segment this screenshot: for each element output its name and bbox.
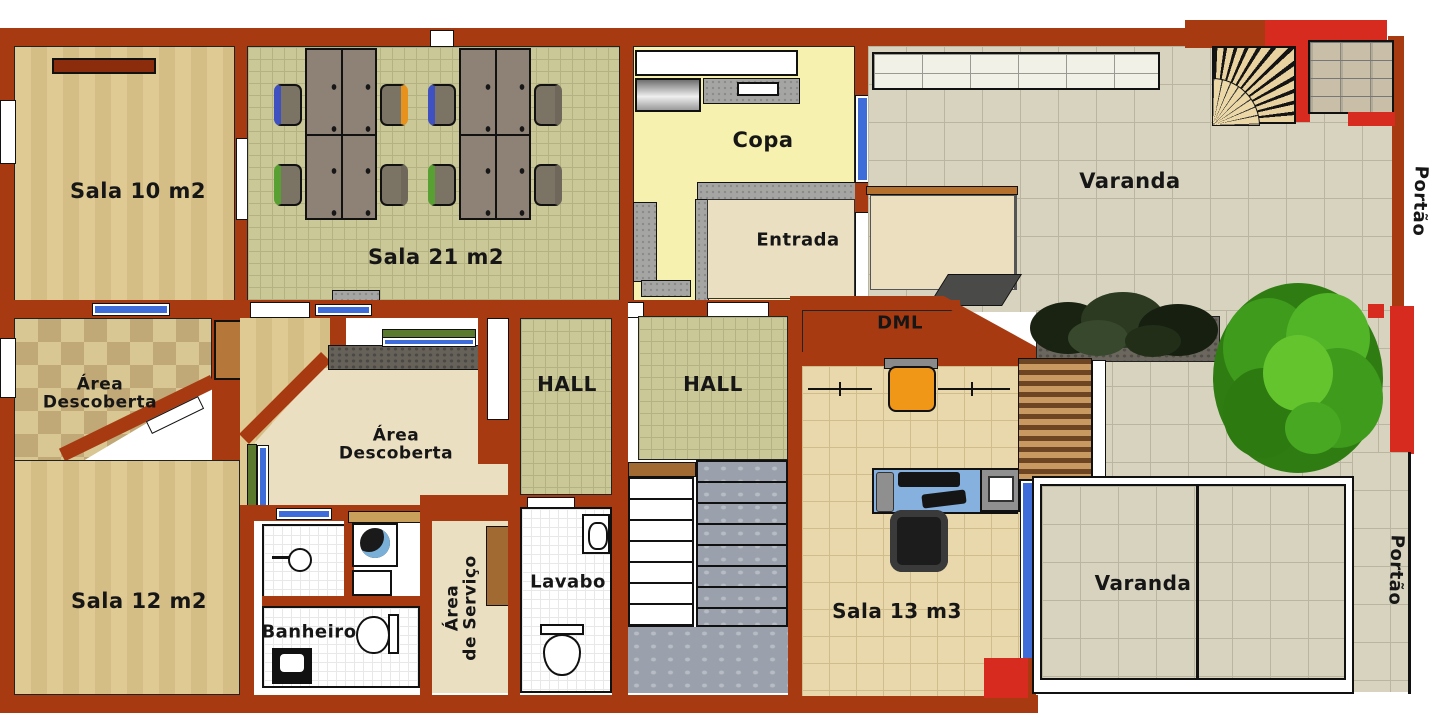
label-varanda-top: Varanda [1079,169,1180,193]
shrubs-icon [1028,286,1228,364]
stone-paving [1308,40,1394,114]
wall-topright-dark [1185,20,1267,48]
stairs-marble [696,460,788,627]
stairs-landing-top [628,462,696,477]
window-banheiro-top [276,508,332,520]
window-sala21-top [430,30,454,47]
door-sala21-bottom [250,302,310,318]
window-sala10-left [0,100,16,164]
label-sala13: Sala 13 m3 [832,599,962,623]
wall-banheiro-servico [420,505,432,695]
door-entrada-hall [707,302,769,317]
room-sala-12 [14,460,240,695]
label-varanda-bottom: Varanda [1095,571,1192,595]
office-chair-green-2 [428,164,456,206]
room-hall-left [520,318,612,495]
office-chair-gray-2 [534,84,562,126]
fridge [635,78,701,112]
dimension-tick-right [971,382,973,396]
guest-chair-orange [888,366,936,412]
window-sala10-bottom [92,303,170,316]
skylight-panels [872,52,1160,90]
label-sala12: Sala 12 m2 [71,589,207,613]
washing-machine-door [360,528,390,558]
label-copa: Copa [732,128,793,152]
room-varanda-bottom [1040,484,1346,680]
window-corridor-top [315,304,372,316]
label-portao-top: Portão [1408,165,1431,236]
granite-strip-left [633,202,657,282]
label-sala10: Sala 10 m2 [70,179,206,203]
desk-cluster-a [305,48,377,220]
door-sala12 [214,320,242,380]
wall-garden-right [1390,306,1414,454]
window-hall-left [487,318,509,420]
shower-arm [272,556,290,559]
label-dml: DML [877,313,923,334]
office-chair-gray [380,164,408,206]
toilet-banheiro-bowl [356,616,390,654]
wall-sala21-copa [620,46,633,302]
label-hall-mid: HALL [683,372,743,396]
wall-garden-square [1368,304,1384,318]
stairs-white [628,477,694,627]
lot-boundary-line [1408,452,1411,694]
wall-servico-lavabo [508,460,520,695]
gravel-band [328,345,480,370]
office-chair-blue [274,84,302,126]
label-entrada: Entrada [756,230,839,251]
window-area-left [0,338,16,398]
tree-icon [1208,278,1388,478]
office-chair-orange [380,84,408,126]
wall-bottom [0,695,1038,713]
laundry-sink [352,570,392,596]
desk-cluster-b [459,48,531,220]
label-portao-bottom: Portão [1384,534,1407,605]
laundry-counter-top [348,511,424,523]
desk-side-panel [876,472,894,512]
monitor [898,472,960,487]
label-area-descoberta-mid: Área Descoberta [339,427,453,464]
wall-top [0,28,1215,46]
kitchen-counter [635,50,798,76]
varanda-divider [1196,484,1199,680]
wood-deck [1018,358,1092,480]
sink-banheiro-bowl [278,652,306,674]
servico-counter [486,526,510,606]
desk-chair-black [890,510,948,572]
dimension-line-right [938,388,1010,390]
wall-banheiro-left [240,505,254,695]
wall-step-bottom [984,658,1028,698]
office-chair-blue-2 [428,84,456,126]
granite-block-bottom [641,280,691,297]
pergola-rail [866,186,1018,195]
label-area-descoberta-left: Área Descoberta [43,376,157,413]
wall-shower-divider [262,596,420,606]
closet-sala10 [52,58,156,74]
room-sala-10 [14,46,235,310]
stairs-landing-bottom [628,627,788,693]
label-area-servico: Área de Serviço [444,555,481,660]
deck-side-strip [1092,360,1106,478]
office-chair-gray-3 [534,164,562,206]
sink-lavabo-bowl [588,522,608,550]
label-sala21: Sala 21 m2 [368,245,504,269]
shower-head-icon [288,548,312,572]
window-strip-left [257,445,269,514]
printer [988,476,1014,502]
wall-stone-bottom [1348,112,1395,126]
office-chair-green [274,164,302,206]
kitchen-sink [737,82,779,96]
label-banheiro: Banheiro [261,622,356,643]
dimension-tick-left [839,382,841,396]
floor-plan: Sala 10 m2 Sala 21 m2 Copa Entrada Varan… [0,0,1448,720]
label-lavabo: Lavabo [530,572,606,593]
window-strip-top [382,337,476,347]
label-hall-left: HALL [537,372,597,396]
wall-halls-divider [612,300,628,695]
